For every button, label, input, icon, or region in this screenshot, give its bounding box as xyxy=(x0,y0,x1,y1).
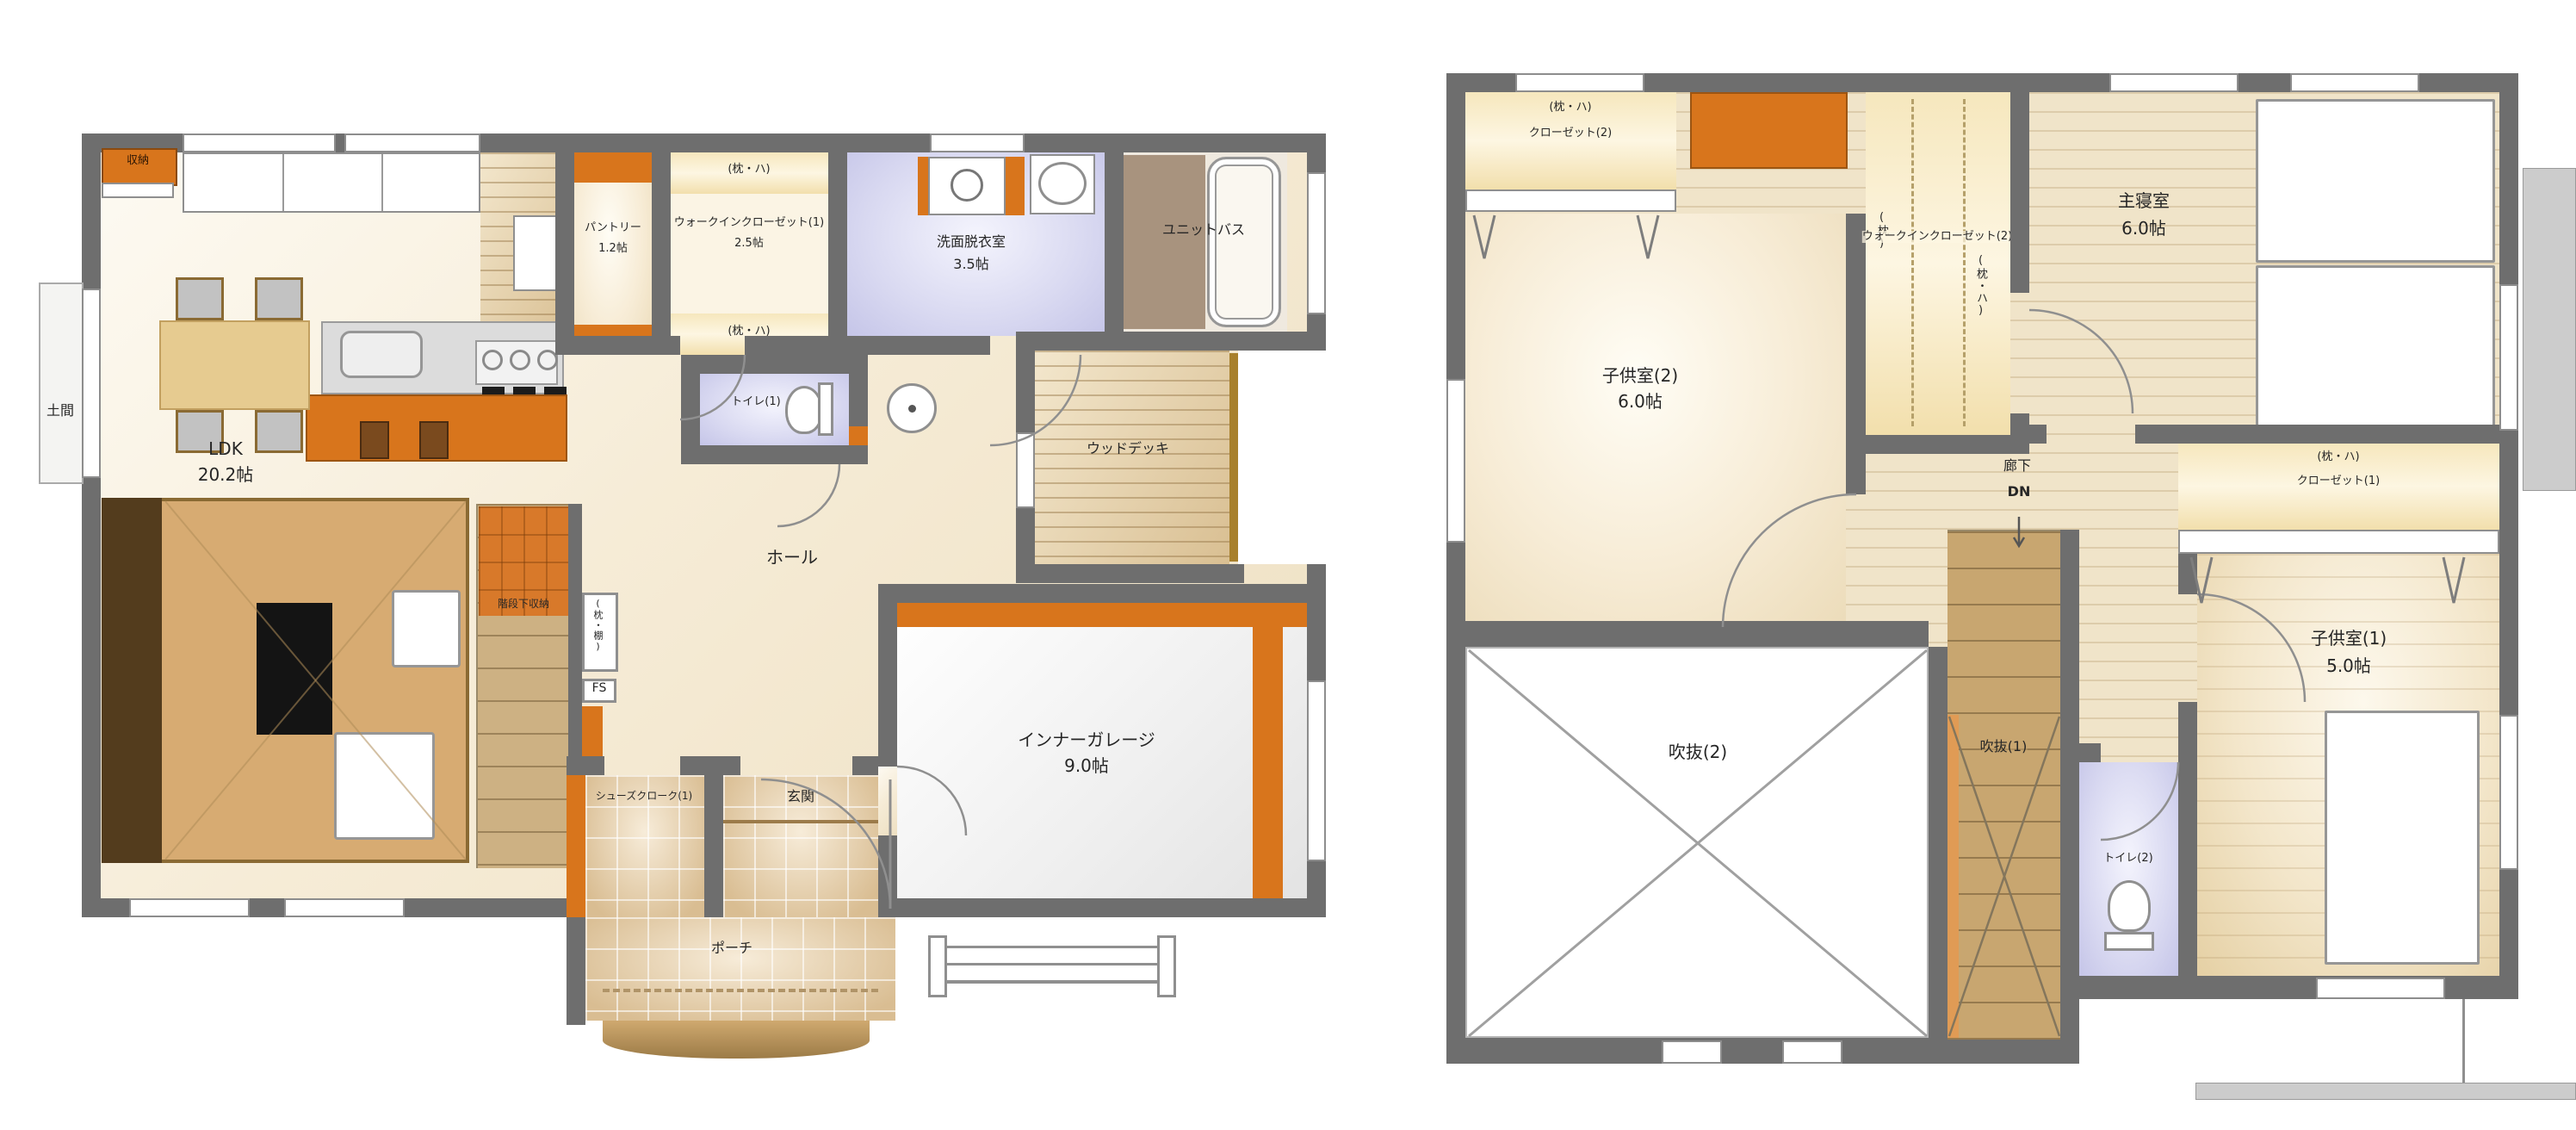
wall xyxy=(2178,743,2197,762)
window xyxy=(1446,379,1465,543)
wall xyxy=(2060,743,2079,976)
wic2-right-label: (枕・ハ) xyxy=(1972,254,1989,318)
wall xyxy=(2178,762,2197,976)
hallway-label: 廊下 xyxy=(2003,458,2031,474)
wic2-hanger-line xyxy=(1911,99,1914,426)
floor-plan-canvas: 土間 収納 xyxy=(0,0,2576,1130)
kids2-floor xyxy=(1465,214,1846,621)
window xyxy=(1515,73,1644,92)
eaves-line xyxy=(2462,999,2465,1083)
floor2-plan: (枕・ハ) クローゼット(2) 子供室(2) 6.0帖 (枕) (枕・ハ) ウォ… xyxy=(0,0,2576,1130)
closet1-shelf-label: (枕・ハ) xyxy=(2317,451,2359,463)
window xyxy=(2499,284,2518,431)
master-label: 主寝室 xyxy=(2118,191,2170,210)
void2-area xyxy=(1465,647,1929,1038)
kids1-label: 子供室(1) xyxy=(2311,629,2387,648)
bed xyxy=(2256,265,2495,431)
closet2-label: クローゼット(2) xyxy=(1529,127,1612,140)
window xyxy=(2290,73,2419,92)
stairs-down xyxy=(1947,530,2060,1040)
toilet-tank xyxy=(2104,932,2154,951)
kids2-size: 6.0帖 xyxy=(1618,392,1663,411)
wall xyxy=(2060,976,2079,1038)
stair-stringer xyxy=(1947,715,1959,1038)
window xyxy=(2316,978,2445,999)
wic2-hanger-line xyxy=(1963,99,1966,426)
wall xyxy=(1846,435,2029,454)
dn-label: DN xyxy=(2008,484,2031,500)
toilet-bowl xyxy=(2108,880,2151,932)
eaves-band xyxy=(2195,1083,2576,1100)
window xyxy=(1782,1040,1842,1064)
master-size: 6.0帖 xyxy=(2121,219,2166,238)
wall xyxy=(1929,647,1947,1038)
kids1-size: 5.0帖 xyxy=(2326,656,2371,675)
wall xyxy=(2178,554,2197,594)
wall xyxy=(2178,425,2499,444)
closet1-label: クローゼット(1) xyxy=(2297,475,2380,487)
closet2-shelf-label: (枕・ハ) xyxy=(1549,102,1591,114)
wall xyxy=(1465,621,1929,647)
kids2-label: 子供室(2) xyxy=(1602,366,1678,385)
closet2-shelf xyxy=(1465,189,1676,212)
wall xyxy=(2010,92,2029,293)
closet1-shelf xyxy=(2178,530,2499,554)
wall xyxy=(2029,425,2047,444)
window xyxy=(2109,73,2239,92)
eaves-band xyxy=(2523,168,2576,491)
bed xyxy=(2256,99,2495,263)
window xyxy=(1662,1040,1722,1064)
void2-label: 吹抜(2) xyxy=(1669,742,1727,761)
window xyxy=(2499,715,2518,870)
toilet2-label: トイレ(2) xyxy=(2103,853,2152,865)
bed xyxy=(2325,711,2480,965)
void1-label: 吹抜(1) xyxy=(1980,739,2028,754)
wic2-label: ウォークインクローゼット(2) xyxy=(1862,231,2012,243)
wall xyxy=(2060,530,2079,743)
upper-cabinet xyxy=(1690,92,1848,169)
